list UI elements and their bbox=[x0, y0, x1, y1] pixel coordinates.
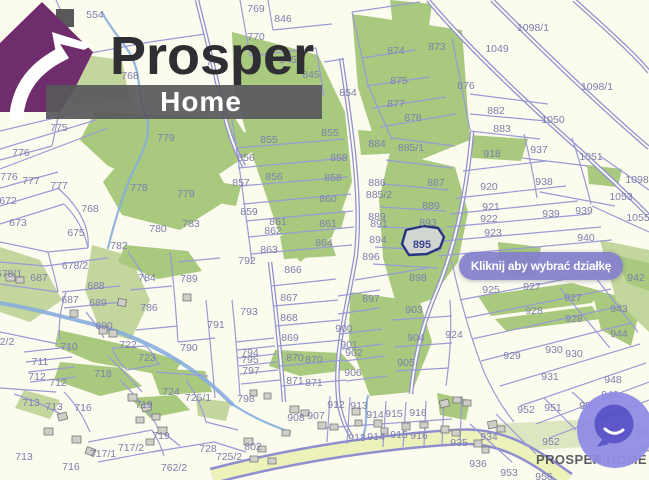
parcel-label: 789 bbox=[180, 273, 198, 285]
parcel-label: 678/2 bbox=[62, 260, 88, 272]
chat-bubble-icon bbox=[577, 392, 649, 468]
parcel-label: 914 bbox=[367, 431, 385, 443]
building bbox=[183, 294, 191, 301]
parcel-label: 713 bbox=[15, 451, 33, 463]
parcel-label: 877 bbox=[387, 98, 405, 110]
prosper-home-logo: Prosper Home bbox=[0, 0, 340, 126]
parcel-label: 784 bbox=[138, 272, 156, 284]
parcel-label: 930 bbox=[565, 348, 583, 360]
building bbox=[318, 422, 326, 429]
parcel-label: 936 bbox=[469, 458, 487, 470]
parcel-label: 902 bbox=[345, 347, 363, 359]
parcel-label: 779 bbox=[177, 188, 195, 200]
parcel-label: 1098 bbox=[625, 174, 649, 186]
parcel-label: 688 bbox=[87, 280, 105, 292]
parcel-label: 790 bbox=[180, 342, 198, 354]
parcel-label: 797 bbox=[242, 365, 260, 377]
parcel-label: 858 bbox=[324, 172, 342, 184]
parcel-label: 883 bbox=[493, 123, 511, 135]
parcel-label: 915 bbox=[385, 408, 403, 420]
building bbox=[463, 400, 471, 406]
chat-widget-button[interactable] bbox=[577, 392, 649, 468]
parcel-label: 2/2 bbox=[0, 336, 14, 348]
parcel-label: 678/1 bbox=[0, 268, 22, 280]
parcel-label: 792 bbox=[238, 255, 256, 267]
building bbox=[453, 397, 461, 403]
parcel-label: 1098/1 bbox=[581, 81, 613, 93]
parcel-label: 905 bbox=[397, 357, 415, 369]
building bbox=[420, 422, 428, 428]
parcel-label: 1053 bbox=[609, 191, 633, 203]
parcel-label: 893 bbox=[419, 217, 437, 229]
parcel-label: 884 bbox=[368, 138, 386, 150]
parcel-label: 782 bbox=[110, 240, 128, 252]
building bbox=[152, 414, 160, 420]
parcel-label: 861 bbox=[319, 218, 337, 230]
parcel-label: 713 bbox=[45, 401, 63, 413]
parcel-label: 937 bbox=[530, 144, 548, 156]
parcel-label: 778 bbox=[130, 182, 148, 194]
parcel-label: 942 bbox=[627, 272, 645, 284]
parcel-label: 779 bbox=[157, 132, 175, 144]
parcel-label: 871 bbox=[286, 375, 304, 387]
parcel-label: 935 bbox=[450, 437, 468, 449]
parcel-label: 857 bbox=[232, 177, 250, 189]
parcel-label: 953 bbox=[500, 467, 518, 479]
parcel-label: 887 bbox=[427, 177, 445, 189]
parcel-label: 912 bbox=[327, 399, 345, 411]
parcel-label: 864 bbox=[315, 237, 333, 249]
parcel-label: 885/2 bbox=[366, 189, 392, 201]
parcel-label: 878 bbox=[404, 112, 422, 124]
parcel-label: 873 bbox=[428, 41, 446, 53]
select-parcel-tooltip: Kliknij aby wybrać działkę bbox=[459, 252, 623, 280]
building bbox=[441, 426, 449, 433]
parcel-label: 913 bbox=[348, 432, 366, 444]
parcel-label: 930 bbox=[545, 344, 563, 356]
parcel-label: 869 bbox=[281, 332, 299, 344]
parcel-label: 860 bbox=[319, 193, 337, 205]
parcel-label: 886 bbox=[368, 177, 386, 189]
parcel-label: 719 bbox=[135, 399, 153, 411]
parcel-label: 728 bbox=[199, 443, 217, 455]
parcel-label: 768 bbox=[81, 203, 99, 215]
parcel-label: 866 bbox=[284, 264, 302, 276]
parcel-label: 717/1 bbox=[90, 448, 116, 460]
parcel-label: 939 bbox=[575, 205, 593, 217]
parcel-label: 712 bbox=[28, 371, 46, 383]
parcel-label: 929 bbox=[503, 350, 521, 362]
parcel-label: 1055 bbox=[626, 212, 649, 224]
parcel-label: 724 bbox=[162, 386, 180, 398]
parcel-label: 689 bbox=[89, 297, 107, 309]
parcel-label: 716 bbox=[74, 402, 92, 414]
parcel-label: 776 bbox=[0, 171, 18, 183]
parcel-label: 863 bbox=[260, 244, 278, 256]
parcel-label: 920 bbox=[480, 181, 498, 193]
parcel-label: 914 bbox=[366, 409, 384, 421]
parcel-label: 927 bbox=[523, 281, 541, 293]
parcel-label: 687 bbox=[61, 294, 79, 306]
parcel-label: 944 bbox=[610, 328, 628, 340]
parcel-label: 802 bbox=[244, 441, 262, 453]
parcel-label: 898 bbox=[409, 272, 427, 284]
parcel-label: 934 bbox=[480, 431, 498, 443]
parcel-label: 776 bbox=[12, 147, 30, 159]
parcel-label: 711 bbox=[32, 356, 49, 368]
logo-title: Prosper bbox=[110, 28, 314, 85]
parcel-label: 783 bbox=[182, 218, 200, 230]
parcel-label: 710 bbox=[60, 341, 78, 353]
parcel-label: 786 bbox=[140, 302, 158, 314]
parcel-label: 798 bbox=[237, 393, 255, 405]
parcel-label: 862 bbox=[264, 225, 282, 237]
parcel-label: 923 bbox=[484, 227, 502, 239]
parcel-label: 1049 bbox=[485, 43, 509, 55]
parcel-label: 896 bbox=[362, 251, 380, 263]
parcel-label: 908 bbox=[287, 412, 305, 424]
parcel-label: 897 bbox=[362, 293, 380, 305]
building bbox=[268, 458, 276, 464]
parcel-label: 900 bbox=[335, 323, 353, 335]
parcel-label: 915 bbox=[390, 429, 408, 441]
parcel-label: 924 bbox=[445, 329, 463, 341]
parcel-label: 712 bbox=[49, 377, 67, 389]
building bbox=[482, 447, 489, 453]
building bbox=[44, 428, 53, 435]
parcel-label: 938 bbox=[535, 176, 553, 188]
parcel-label: 918 bbox=[483, 148, 501, 160]
parcel-label: 1051 bbox=[579, 151, 603, 163]
parcel-label: 856 bbox=[237, 152, 255, 164]
parcel-label: 856 bbox=[265, 171, 283, 183]
parcel-label: 854 bbox=[339, 87, 357, 99]
parcel-label: 725/2 bbox=[216, 451, 242, 463]
parcel-label: 672 bbox=[0, 195, 17, 207]
parcel-label: 876 bbox=[457, 80, 475, 92]
building bbox=[374, 420, 382, 427]
parcel-label: 928 bbox=[525, 305, 543, 317]
parcel-label: 939 bbox=[542, 208, 560, 220]
parcel-label: 868 bbox=[280, 312, 298, 324]
building bbox=[72, 436, 81, 443]
parcel-label: 722 bbox=[119, 339, 137, 351]
parcel-label: 780 bbox=[149, 223, 167, 235]
parcel-label: 870 bbox=[286, 352, 304, 364]
parcel-label: 922 bbox=[480, 213, 498, 225]
building bbox=[355, 420, 362, 426]
building bbox=[497, 426, 505, 432]
parcel-label: 791 bbox=[207, 319, 225, 331]
parcel-label: 762/2 bbox=[161, 462, 187, 474]
parcel-label: 875 bbox=[390, 75, 408, 87]
parcel-label: 904 bbox=[407, 332, 425, 344]
parcel-label: 675 bbox=[67, 227, 85, 239]
selected-parcel-label: 895 bbox=[413, 239, 431, 251]
logo-subtitle: Home bbox=[126, 86, 242, 118]
parcel-label: 718 bbox=[94, 368, 112, 380]
parcel-label: 952 bbox=[542, 436, 560, 448]
parcel-label: 889 bbox=[422, 200, 440, 212]
parcel-label: 673 bbox=[9, 217, 27, 229]
parcel-label: 931 bbox=[541, 371, 559, 383]
building bbox=[70, 310, 78, 317]
parcel-label: 793 bbox=[240, 306, 258, 318]
parcel-label: 940 bbox=[577, 232, 595, 244]
parcel-label: 952 bbox=[517, 404, 535, 416]
parcel-label: 719 bbox=[152, 430, 170, 442]
parcel-label: 948 bbox=[604, 374, 622, 386]
parcel-label: 871 bbox=[305, 377, 323, 389]
parcel-label: 874 bbox=[387, 45, 405, 57]
parcel-label: 725/1 bbox=[185, 392, 211, 404]
parcel-label: 867 bbox=[280, 292, 298, 304]
parcel-label: 870 bbox=[305, 354, 323, 366]
parcel-label: 916 bbox=[410, 430, 428, 442]
parcel-map-viewport[interactable]: 55476984677087387410491098/1771845845875… bbox=[0, 0, 649, 480]
parcel-label: 943 bbox=[610, 303, 628, 315]
parcel-label: 777 bbox=[50, 180, 68, 192]
parcel-label: 855 bbox=[321, 127, 339, 139]
parcel-label: 1098/1 bbox=[517, 22, 549, 34]
building bbox=[136, 417, 144, 423]
parcel-label: 717/2 bbox=[118, 442, 144, 454]
parcel-label: 925 bbox=[482, 284, 500, 296]
parcel-label: 951 bbox=[544, 402, 562, 414]
parcel-label: 687 bbox=[30, 272, 48, 284]
building bbox=[250, 456, 258, 462]
parcel-label: 713 bbox=[22, 397, 40, 409]
parcel-label: 921 bbox=[482, 201, 500, 213]
parcel-label: 855 bbox=[260, 134, 278, 146]
parcel-label: 777 bbox=[22, 175, 40, 187]
parcel-label: 859 bbox=[240, 206, 258, 218]
parcel-label: 891 bbox=[370, 218, 388, 230]
parcel-label: 1050 bbox=[541, 114, 565, 126]
parcel-label: 906 bbox=[344, 367, 362, 379]
parcel-label: 882 bbox=[487, 105, 505, 117]
building bbox=[264, 393, 271, 399]
parcel-label: 858 bbox=[330, 152, 348, 164]
building bbox=[282, 430, 290, 436]
parcel-label: 927 bbox=[564, 292, 582, 304]
parcel-label: 928 bbox=[565, 313, 583, 325]
parcel-label: 716 bbox=[62, 461, 80, 473]
parcel-label: 723 bbox=[138, 352, 156, 364]
parcel-label: 690 bbox=[95, 320, 113, 332]
parcel-label: 907 bbox=[307, 410, 325, 422]
building bbox=[487, 420, 497, 428]
logo-subtitle-bar: Home bbox=[46, 85, 322, 119]
parcel-label: 894 bbox=[369, 234, 387, 246]
parcel-label: 956 bbox=[535, 471, 553, 480]
building bbox=[452, 430, 460, 436]
parcel-label: 903 bbox=[405, 304, 423, 316]
building bbox=[330, 424, 338, 430]
parcel-label: 916 bbox=[409, 407, 427, 419]
parcel-label: 885/1 bbox=[398, 142, 424, 154]
building bbox=[117, 298, 126, 307]
